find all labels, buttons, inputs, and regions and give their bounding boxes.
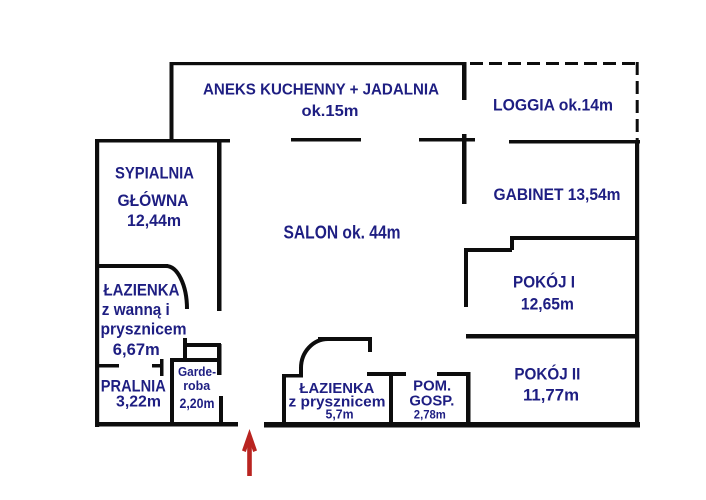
svg-text:SYPIALNIA: SYPIALNIA (115, 164, 194, 183)
svg-text:ANEKS KUCHENNY + JADALNIA: ANEKS KUCHENNY + JADALNIA (203, 82, 439, 99)
svg-text:11,77m: 11,77m (523, 386, 579, 405)
svg-text:2,78m: 2,78m (414, 408, 446, 422)
svg-text:2,20m: 2,20m (180, 396, 215, 411)
svg-text:GABINET 13,54m: GABINET 13,54m (494, 185, 621, 204)
svg-text:prysznicem: prysznicem (101, 321, 187, 339)
svg-text:POM.: POM. (413, 378, 451, 394)
svg-text:5,7m: 5,7m (326, 407, 354, 422)
svg-text:ok.15m: ok.15m (302, 103, 359, 120)
svg-text:POKÓJ I: POKÓJ I (513, 272, 575, 291)
svg-text:6,67m: 6,67m (113, 340, 160, 359)
svg-text:ŁAZIENKA: ŁAZIENKA (104, 282, 180, 300)
svg-text:POKÓJ II: POKÓJ II (514, 364, 580, 383)
svg-text:Garde-: Garde- (178, 365, 216, 379)
svg-text:3,22m: 3,22m (116, 394, 161, 411)
svg-text:roba: roba (183, 379, 211, 393)
svg-text:z wanną i: z wanną i (102, 301, 170, 319)
svg-text:SALON ok. 44m: SALON ok. 44m (284, 223, 401, 243)
svg-text:12,44m: 12,44m (127, 211, 181, 230)
svg-text:GŁÓWNA: GŁÓWNA (118, 191, 189, 210)
svg-text:12,65m: 12,65m (521, 295, 574, 314)
svg-text:LOGGIA ok.14m: LOGGIA ok.14m (493, 96, 613, 115)
